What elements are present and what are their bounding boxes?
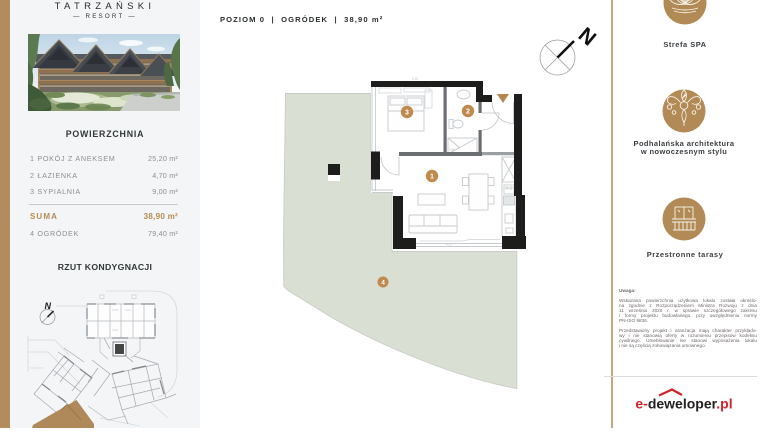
svg-text:2: 2 <box>466 109 470 116</box>
svg-text:2,96: 2,96 <box>449 148 455 152</box>
svg-text:4,25: 4,25 <box>446 243 452 247</box>
svg-text:4: 4 <box>381 279 385 286</box>
svg-text:5,39: 5,39 <box>412 77 418 81</box>
svg-text:3: 3 <box>405 110 409 117</box>
svg-text:1: 1 <box>430 174 434 181</box>
svg-text:N: N <box>574 23 600 50</box>
svg-text:N: N <box>45 301 52 311</box>
svg-text:e-deweloper.pl: e-deweloper.pl <box>635 396 732 412</box>
